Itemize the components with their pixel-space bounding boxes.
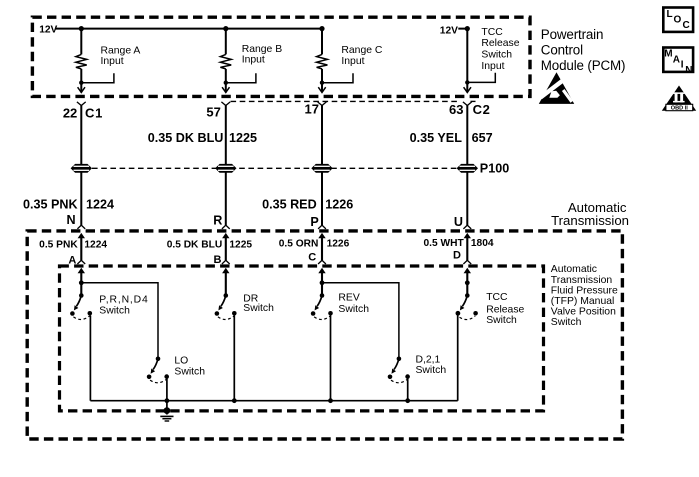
svg-text:12V: 12V [440,26,458,37]
svg-text:1225: 1225 [229,131,257,145]
svg-text:N: N [685,65,692,76]
svg-text:C: C [683,20,690,31]
svg-text:(TFP) Manual: (TFP) Manual [551,296,615,307]
svg-text:Switch: Switch [174,366,205,377]
svg-text:Switch: Switch [416,365,447,376]
svg-text:Release: Release [481,38,519,49]
svg-text:L: L [667,9,673,20]
svg-text:R: R [213,213,222,227]
svg-text:Powertrain: Powertrain [541,27,604,42]
svg-text:1224: 1224 [86,198,114,212]
svg-text:Input: Input [341,56,364,67]
svg-text:C2: C2 [473,102,491,117]
svg-text:I: I [681,60,684,71]
svg-text:1804: 1804 [471,238,494,249]
svg-text:Range A: Range A [101,45,141,56]
svg-text:0.35 PNK: 0.35 PNK [23,198,78,212]
svg-text:0.5 ORN: 0.5 ORN [279,238,319,249]
svg-text:C1: C1 [85,106,103,121]
svg-text:O: O [674,15,682,26]
svg-text:0.35 RED: 0.35 RED [262,198,317,212]
svg-text:Range C: Range C [341,45,383,56]
svg-text:Switch: Switch [481,50,512,61]
svg-text:1226: 1226 [327,238,350,249]
svg-text:0.35 YEL: 0.35 YEL [410,131,463,145]
svg-text:17: 17 [305,101,319,116]
svg-text:12V: 12V [39,25,57,36]
svg-text:0.5 PNK: 0.5 PNK [39,239,78,250]
svg-text:0.35 DK BLU: 0.35 DK BLU [148,131,224,145]
svg-text:22: 22 [63,106,77,121]
svg-text:Fluid Pressure: Fluid Pressure [551,285,618,296]
svg-text:Range B: Range B [242,44,283,55]
svg-text:Automatic: Automatic [551,264,597,275]
svg-text:Input: Input [242,55,265,66]
svg-text:1224: 1224 [84,239,107,250]
svg-text:657: 657 [472,131,493,145]
svg-text:1226: 1226 [325,198,353,212]
svg-text:D: D [453,249,461,261]
svg-text:M: M [664,49,672,60]
svg-text:57: 57 [206,104,220,119]
svg-text:Input: Input [101,56,124,67]
svg-text:P100: P100 [480,161,509,175]
svg-text:Module (PCM): Module (PCM) [541,58,626,73]
svg-text:63: 63 [449,102,463,117]
svg-text:Valve Position: Valve Position [551,307,616,318]
svg-text:Transmission: Transmission [551,213,629,228]
svg-text:C: C [308,251,316,263]
svg-text:Switch: Switch [551,317,582,328]
svg-text:Switch: Switch [486,315,517,326]
svg-text:LO: LO [174,355,188,366]
svg-text:REV: REV [338,293,359,304]
svg-text:Switch: Switch [243,303,274,314]
svg-text:Switch: Switch [99,305,130,316]
svg-text:P,R,N,D4: P,R,N,D4 [99,295,148,306]
svg-text:TCC: TCC [481,27,503,38]
svg-text:1225: 1225 [229,239,252,250]
svg-text:OBD II: OBD II [671,106,689,112]
svg-text:P: P [310,215,318,229]
svg-text:Switch: Switch [338,304,369,315]
svg-text:A: A [673,54,680,65]
svg-text:Control: Control [541,43,583,58]
svg-text:Input: Input [481,61,504,72]
svg-text:N: N [66,213,75,227]
svg-text:0.5 DK BLU: 0.5 DK BLU [167,239,222,250]
svg-text:TCC: TCC [486,292,508,303]
svg-text:U: U [454,215,463,229]
svg-text:0.5 WHT: 0.5 WHT [423,238,464,249]
svg-text:Transmission: Transmission [551,275,613,286]
